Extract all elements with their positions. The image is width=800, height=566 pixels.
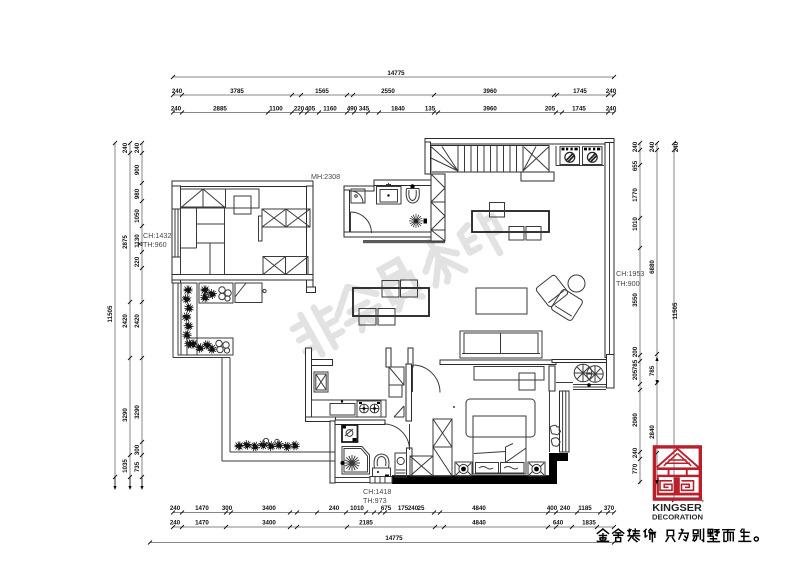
svg-text:3785: 3785 [230,88,244,95]
svg-text:1100: 1100 [269,106,283,113]
svg-text:2185: 2185 [359,520,373,527]
svg-text:1010: 1010 [632,217,639,231]
svg-text:240: 240 [632,141,639,152]
svg-text:DECORATION: DECORATION [652,514,703,521]
svg-text:3550: 3550 [632,293,639,307]
svg-text:640: 640 [553,520,564,527]
svg-text:200: 200 [632,346,639,357]
svg-text:240: 240 [170,520,181,527]
svg-text:240: 240 [606,88,617,95]
svg-text:4840: 4840 [472,520,486,527]
svg-text:TH:900: TH:900 [616,279,640,288]
svg-text:14775: 14775 [385,535,403,542]
svg-text:CH:1418: CH:1418 [363,487,391,496]
svg-text:300: 300 [134,444,141,455]
svg-text:1835: 1835 [582,520,596,527]
svg-text:205: 205 [545,106,556,113]
svg-text:TH:973: TH:973 [363,496,387,505]
svg-text:135: 135 [425,106,436,113]
svg-text:1745: 1745 [572,106,586,113]
svg-text:785: 785 [632,359,639,370]
svg-text:2550: 2550 [381,88,395,95]
svg-text:240: 240 [673,141,680,152]
svg-text:1745: 1745 [573,88,587,95]
svg-text:240: 240 [649,141,656,152]
svg-text:3960: 3960 [483,106,497,113]
svg-text:1185: 1185 [578,505,592,512]
svg-text:300: 300 [222,505,233,512]
svg-text:220: 220 [294,106,305,113]
svg-text:2420: 2420 [122,314,129,328]
svg-text:785: 785 [649,365,656,376]
svg-text:4840: 4840 [472,505,486,512]
svg-text:': ' [702,498,704,508]
svg-text:400: 400 [547,505,558,512]
svg-text:900: 900 [134,164,141,175]
svg-text:25: 25 [418,505,425,512]
svg-text:655: 655 [632,160,639,171]
svg-text:11505: 11505 [107,305,114,322]
svg-text:240: 240 [560,505,571,512]
svg-text:2420: 2420 [134,314,141,328]
svg-text:CH:1432: CH:1432 [143,231,171,240]
svg-text:240: 240 [170,505,181,512]
svg-text:1470: 1470 [195,505,209,512]
svg-text:220: 220 [134,256,141,267]
svg-text:2885: 2885 [213,106,227,113]
svg-text:TH:960: TH:960 [143,240,167,249]
svg-text:240: 240 [606,106,617,113]
svg-text:240: 240 [172,88,183,95]
svg-text:MH:2308: MH:2308 [311,172,340,181]
svg-text:735: 735 [134,461,141,472]
svg-text:240: 240 [329,505,340,512]
svg-text:1130: 1130 [134,234,141,248]
svg-text:3400: 3400 [262,505,276,512]
svg-text:3960: 3960 [483,88,497,95]
svg-text:KINGSER: KINGSER [652,503,702,514]
svg-text:1160: 1160 [323,106,337,113]
svg-text:1050: 1050 [134,209,141,223]
svg-text:1035: 1035 [122,459,129,473]
svg-text:240: 240 [171,106,182,113]
svg-text:11505: 11505 [672,302,679,319]
svg-text:345: 345 [359,106,370,113]
svg-text:205: 205 [632,369,639,380]
svg-text:1770: 1770 [632,188,639,202]
svg-text:3290: 3290 [134,405,141,419]
svg-text:1010: 1010 [350,505,364,512]
svg-text:240: 240 [632,447,639,458]
svg-text:675: 675 [381,505,392,512]
svg-text:770: 770 [632,463,639,474]
svg-text:240: 240 [122,142,129,153]
svg-text:2875: 2875 [122,235,129,249]
svg-text:3290: 3290 [122,408,129,422]
svg-text:240: 240 [134,142,141,153]
svg-text:2060: 2060 [632,413,639,427]
svg-text:CH:1953: CH:1953 [616,269,644,278]
svg-text:370: 370 [604,505,615,512]
svg-text:2840: 2840 [649,425,656,439]
svg-text:1470: 1470 [195,520,209,527]
svg-text:405: 405 [305,106,316,113]
svg-text:3400: 3400 [262,520,276,527]
svg-text:490: 490 [347,106,358,113]
svg-text:980: 980 [134,188,141,199]
svg-text:1565: 1565 [315,88,329,95]
svg-text:14775: 14775 [387,70,405,77]
svg-text:1840: 1840 [391,106,405,113]
svg-text:6880: 6880 [649,260,656,274]
